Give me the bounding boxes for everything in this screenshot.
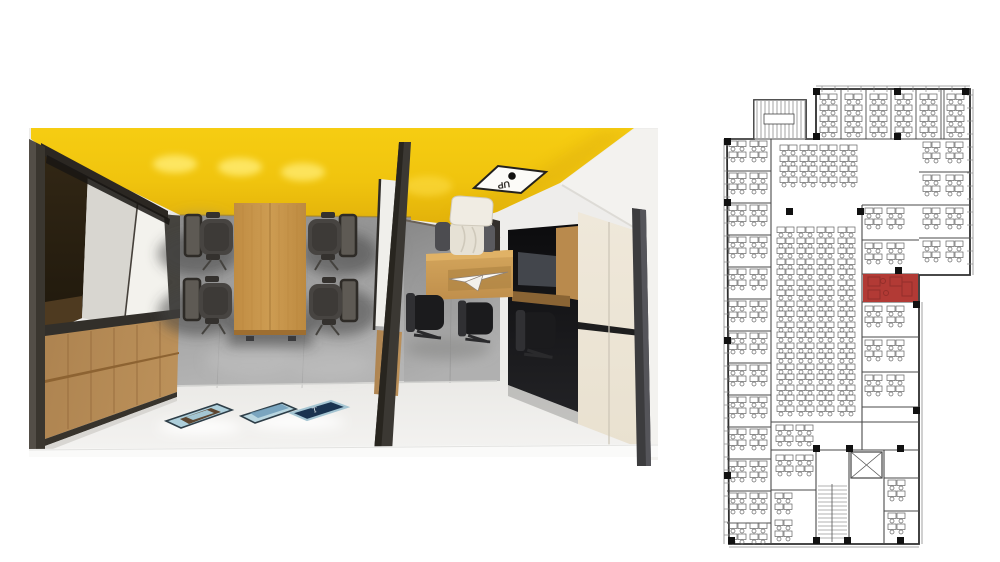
svg-text:UP: UP [497,179,511,191]
